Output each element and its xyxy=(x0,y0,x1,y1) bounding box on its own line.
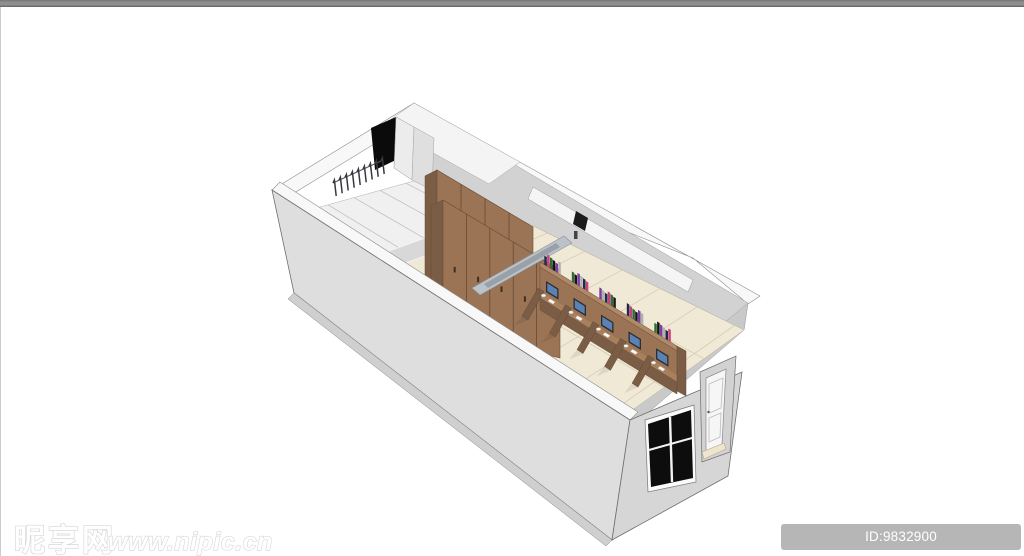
book xyxy=(599,287,602,300)
clothes-hanger xyxy=(333,180,336,196)
wardrobe-door-handle xyxy=(501,287,503,293)
book xyxy=(602,290,605,302)
book xyxy=(654,323,657,334)
book xyxy=(660,324,663,337)
wardrobe-door-handle xyxy=(477,277,479,283)
book xyxy=(583,278,586,290)
book xyxy=(575,274,578,285)
clothes-hanger xyxy=(351,172,354,188)
wardrobe-door-handle xyxy=(524,296,526,302)
book xyxy=(547,254,550,267)
book xyxy=(613,297,616,309)
book xyxy=(553,260,556,272)
book xyxy=(663,327,666,339)
book xyxy=(572,271,575,283)
book xyxy=(608,291,611,305)
book xyxy=(611,294,614,307)
book xyxy=(630,306,633,319)
small-room-wall-a xyxy=(394,117,414,180)
mouse xyxy=(624,345,628,348)
book xyxy=(550,257,553,270)
desk-end-panel xyxy=(677,346,686,396)
book xyxy=(668,328,671,342)
3d-room-model xyxy=(0,0,1024,556)
book xyxy=(638,310,641,324)
wardrobe-door-handle xyxy=(454,267,456,273)
clothes-hanger xyxy=(345,175,348,191)
mouse xyxy=(541,294,545,297)
beam-end-bracket xyxy=(574,231,578,239)
mouse xyxy=(596,328,600,331)
mouse xyxy=(569,311,573,314)
door-knob xyxy=(707,411,709,413)
book xyxy=(586,281,589,292)
book xyxy=(605,293,608,304)
book xyxy=(635,311,638,322)
clothes-hanger xyxy=(339,177,342,193)
book xyxy=(627,303,630,317)
book xyxy=(666,330,669,341)
stock-image-preview: 昵享网 www.nipic.cn ID:9832900 NO:202008211… xyxy=(0,0,1024,556)
clothes-hanger xyxy=(369,164,372,180)
book xyxy=(556,263,559,274)
book xyxy=(632,309,635,321)
book xyxy=(558,261,561,275)
book xyxy=(544,256,547,267)
book xyxy=(657,322,660,336)
book xyxy=(641,313,644,326)
book xyxy=(577,273,580,287)
book xyxy=(580,276,583,289)
mouse xyxy=(651,361,655,364)
image-id-badge: ID:9832900 NO:20200821172337180088 xyxy=(781,524,1021,550)
clothes-hanger xyxy=(363,166,366,182)
clothes-hanger xyxy=(357,169,360,185)
